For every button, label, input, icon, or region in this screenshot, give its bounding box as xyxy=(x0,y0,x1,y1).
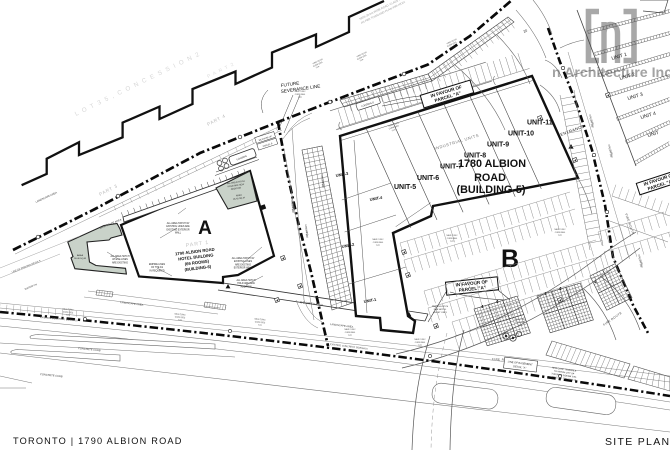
svg-text:UNIT-5: UNIT-5 xyxy=(394,184,416,191)
svg-text:1780 ALBION: 1780 ALBION xyxy=(458,158,526,170)
svg-text:ALL AREA HATCH W/: ALL AREA HATCH W/ xyxy=(167,222,190,225)
svg-text:UNIT-9: UNIT-9 xyxy=(487,142,509,149)
svg-text:OF THE AS: OF THE AS xyxy=(151,266,163,269)
svg-text:UNIT-11: UNIT-11 xyxy=(527,120,553,127)
svg-text:EXISTING LINES ARE: EXISTING LINES ARE xyxy=(166,225,190,228)
svg-text:NEW CONC: NEW CONC xyxy=(344,329,356,331)
svg-text:W/ EXG LINES: W/ EXG LINES xyxy=(112,259,128,261)
svg-text:TYP.: TYP. xyxy=(258,325,263,327)
svg-text:TYP.: TYP. xyxy=(450,241,455,243)
svg-text:EMPIRE LINES: EMPIRE LINES xyxy=(149,264,166,266)
svg-text:IN REQUIRED: IN REQUIRED xyxy=(149,270,164,272)
svg-text:TORONTO | 1790 ALBION ROAD: TORONTO | 1790 ALBION ROAD xyxy=(13,436,183,446)
svg-text:(BUILDING-5): (BUILDING-5) xyxy=(457,184,526,196)
svg-text:CURB SEG: CURB SEG xyxy=(555,232,566,234)
svg-text:90.40 SQ.M: 90.40 SQ.M xyxy=(74,258,86,260)
svg-text:NEW CONC: NEW CONC xyxy=(414,339,426,341)
svg-text:NEW CONC: NEW CONC xyxy=(554,229,566,231)
svg-text:TYP.: TYP. xyxy=(558,235,563,237)
svg-text:TYP.: TYP. xyxy=(298,97,303,99)
svg-text:ARE EXISTING: ARE EXISTING xyxy=(235,263,251,266)
svg-text:ALL AREA HATCH W/: ALL AREA HATCH W/ xyxy=(232,257,255,260)
svg-text:CURB SEG: CURB SEG xyxy=(415,342,426,344)
svg-text:EXTERIOR WALL: EXTERIOR WALL xyxy=(234,267,253,270)
svg-text:TYP.: TYP. xyxy=(66,315,71,317)
svg-text:ARE EXISTING: ARE EXISTING xyxy=(112,261,128,264)
svg-text:EXISTING EXTERIOR: EXISTING EXTERIOR xyxy=(166,229,189,231)
svg-text:CURB SEG: CURB SEG xyxy=(515,322,526,324)
svg-text:A: A xyxy=(198,218,212,239)
svg-text:TYP.: TYP. xyxy=(418,345,423,347)
svg-text:TYP.: TYP. xyxy=(376,245,381,247)
svg-text:SITE PLAN: SITE PLAN xyxy=(605,436,670,448)
svg-text:NEW CONC: NEW CONC xyxy=(294,91,306,93)
svg-text:ROAD: ROAD xyxy=(474,172,506,184)
svg-text:PARKING SPCS: PARKING SPCS xyxy=(432,305,449,308)
svg-text:WALL: WALL xyxy=(175,232,182,235)
svg-text:TYP.: TYP. xyxy=(178,320,183,322)
svg-text:UNIT-6: UNIT-6 xyxy=(417,175,439,182)
svg-text:CURB SEG: CURB SEG xyxy=(447,238,458,240)
svg-text:TYP.: TYP. xyxy=(518,325,523,327)
svg-text:AREA: AREA xyxy=(77,254,83,257)
svg-text:CURB SEG: CURB SEG xyxy=(345,332,356,334)
svg-text:NEW CONC: NEW CONC xyxy=(514,319,526,321)
svg-text:NEW CONC: NEW CONC xyxy=(446,235,458,237)
svg-text:ALL AREA HATCH: ALL AREA HATCH xyxy=(110,255,129,258)
svg-text:NEW CONC: NEW CONC xyxy=(372,239,384,241)
svg-text:CURB SEG: CURB SEG xyxy=(295,94,306,96)
svg-text:FOR HOTEL: FOR HOTEL xyxy=(434,309,447,311)
svg-text:CURB SEG: CURB SEG xyxy=(373,242,384,244)
svg-text:UNIT-10: UNIT-10 xyxy=(508,131,534,138)
svg-text:TYP.: TYP. xyxy=(348,335,353,337)
